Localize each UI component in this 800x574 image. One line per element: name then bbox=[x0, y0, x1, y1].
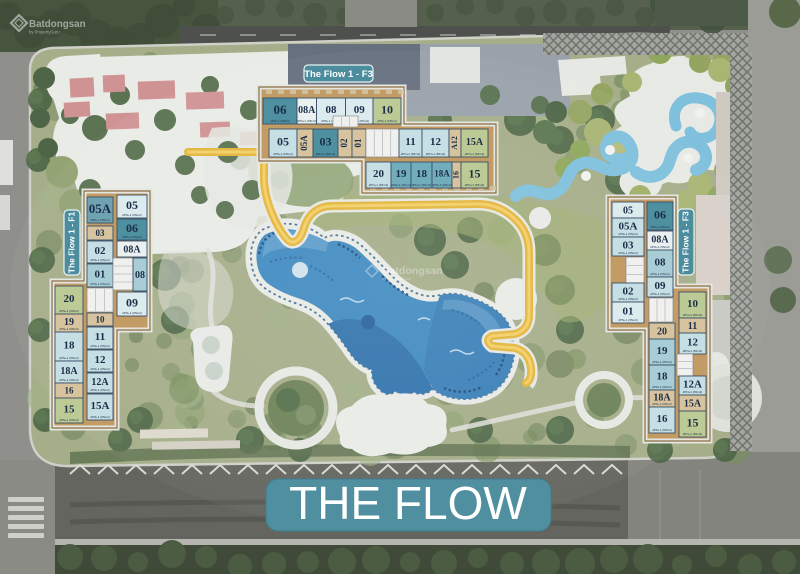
svg-text:2PN+1 (65m2): 2PN+1 (65m2) bbox=[652, 385, 672, 389]
svg-text:10: 10 bbox=[687, 298, 699, 310]
svg-text:2PN+1 (65m2): 2PN+1 (65m2) bbox=[122, 311, 142, 315]
svg-text:15A: 15A bbox=[466, 137, 484, 148]
svg-text:2PN+1 (65m2): 2PN+1 (65m2) bbox=[401, 152, 421, 156]
svg-text:16: 16 bbox=[657, 413, 669, 425]
svg-text:2PN+1 (65m2): 2PN+1 (65m2) bbox=[618, 232, 638, 236]
svg-text:12A: 12A bbox=[91, 377, 109, 388]
svg-text:2PN+1 (65m2): 2PN+1 (65m2) bbox=[90, 218, 110, 222]
svg-text:09: 09 bbox=[655, 280, 667, 292]
svg-text:2PN+1 (65m2): 2PN+1 (65m2) bbox=[122, 213, 142, 217]
svg-text:2PN+1 (65m2): 2PN+1 (65m2) bbox=[650, 245, 670, 249]
svg-text:12: 12 bbox=[430, 136, 442, 148]
svg-text:2PN+1 (65m2): 2PN+1 (65m2) bbox=[90, 258, 110, 262]
svg-text:01: 01 bbox=[95, 269, 106, 281]
svg-text:2PN+1 (65m2): 2PN+1 (65m2) bbox=[683, 349, 703, 353]
svg-text:2PN+1 (65m2): 2PN+1 (65m2) bbox=[465, 183, 485, 187]
svg-text:19: 19 bbox=[396, 168, 408, 180]
svg-text:12: 12 bbox=[687, 337, 699, 349]
svg-text:10: 10 bbox=[96, 315, 106, 325]
svg-text:18: 18 bbox=[657, 371, 669, 383]
svg-text:20: 20 bbox=[657, 326, 667, 337]
svg-text:A12: A12 bbox=[450, 136, 459, 150]
svg-text:2PN+1 (65m2): 2PN+1 (65m2) bbox=[90, 344, 110, 348]
svg-text:2PN+1 (65m2): 2PN+1 (65m2) bbox=[683, 432, 703, 436]
svg-text:by PropertyGuru: by PropertyGuru bbox=[29, 30, 60, 35]
svg-text:15: 15 bbox=[469, 167, 481, 181]
svg-text:2PN+1 (65m2): 2PN+1 (65m2) bbox=[59, 356, 79, 360]
svg-text:2PN+1 (65m2): 2PN+1 (65m2) bbox=[432, 183, 452, 187]
svg-text:16: 16 bbox=[451, 171, 460, 179]
svg-text:2PN+1 (65m2): 2PN+1 (65m2) bbox=[369, 183, 389, 187]
svg-text:2PN+1 (65m2): 2PN+1 (65m2) bbox=[90, 367, 110, 371]
svg-text:06: 06 bbox=[126, 221, 138, 235]
svg-text:2PN+1 (65m2): 2PN+1 (65m2) bbox=[59, 309, 79, 313]
svg-text:11: 11 bbox=[95, 331, 105, 343]
svg-text:08: 08 bbox=[135, 270, 145, 281]
svg-text:06: 06 bbox=[274, 102, 288, 117]
svg-text:01: 01 bbox=[623, 306, 634, 318]
svg-text:20: 20 bbox=[64, 293, 76, 305]
svg-text:2PN+1 (65m2): 2PN+1 (65m2) bbox=[652, 428, 672, 432]
svg-text:Batdongsan: Batdongsan bbox=[29, 19, 86, 30]
svg-text:The Flow 1 - F3: The Flow 1 - F3 bbox=[680, 211, 690, 273]
svg-text:08A: 08A bbox=[298, 105, 316, 116]
svg-text:11: 11 bbox=[405, 136, 415, 148]
svg-text:08A: 08A bbox=[651, 234, 669, 245]
svg-text:01: 01 bbox=[353, 138, 363, 148]
svg-text:03: 03 bbox=[96, 228, 106, 238]
svg-text:15: 15 bbox=[64, 404, 76, 416]
svg-text:2PN+1 (65m2): 2PN+1 (65m2) bbox=[297, 119, 317, 123]
svg-text:15A: 15A bbox=[684, 398, 702, 409]
svg-text:THE FLOW: THE FLOW bbox=[289, 477, 527, 529]
svg-text:2PN+1 (65m2): 2PN+1 (65m2) bbox=[377, 119, 397, 123]
svg-text:2PN+1 (65m2): 2PN+1 (65m2) bbox=[59, 327, 79, 331]
svg-text:08: 08 bbox=[326, 104, 338, 116]
svg-text:18A: 18A bbox=[434, 169, 450, 179]
svg-text:2PN+1 (65m2): 2PN+1 (65m2) bbox=[618, 318, 638, 322]
svg-text:16: 16 bbox=[65, 386, 75, 396]
svg-text:2PN+1 (65m2): 2PN+1 (65m2) bbox=[270, 119, 290, 123]
svg-text:2PN+1 (65m2): 2PN+1 (65m2) bbox=[650, 272, 670, 276]
svg-text:2PN+1 (65m2): 2PN+1 (65m2) bbox=[122, 235, 142, 239]
svg-text:05: 05 bbox=[277, 135, 289, 149]
svg-text:by PropertyGuru: by PropertyGuru bbox=[382, 276, 411, 281]
svg-text:05: 05 bbox=[126, 198, 138, 212]
svg-text:2PN+1 (65m2): 2PN+1 (65m2) bbox=[316, 152, 336, 156]
svg-text:20: 20 bbox=[373, 168, 385, 180]
svg-text:06: 06 bbox=[654, 208, 666, 222]
svg-text:08A: 08A bbox=[123, 244, 141, 255]
svg-text:The Flow 1 - F1: The Flow 1 - F1 bbox=[66, 212, 76, 274]
svg-text:15A: 15A bbox=[91, 400, 110, 412]
svg-text:18: 18 bbox=[64, 340, 76, 352]
svg-text:2PN+1 (65m2): 2PN+1 (65m2) bbox=[650, 225, 670, 229]
svg-text:05A: 05A bbox=[89, 201, 112, 216]
svg-text:2PN+1 (65m2): 2PN+1 (65m2) bbox=[90, 415, 110, 419]
svg-text:The Flow 1 - F3: The Flow 1 - F3 bbox=[304, 69, 373, 80]
svg-text:18: 18 bbox=[416, 168, 428, 180]
svg-text:2PN+1 (65m2): 2PN+1 (65m2) bbox=[683, 390, 703, 394]
svg-text:2PN+1 (65m2): 2PN+1 (65m2) bbox=[683, 313, 703, 317]
svg-text:2PN+1 (65m2): 2PN+1 (65m2) bbox=[618, 251, 638, 255]
svg-text:03: 03 bbox=[320, 135, 332, 149]
svg-text:2PN+1 (65m2): 2PN+1 (65m2) bbox=[90, 282, 110, 286]
svg-text:02: 02 bbox=[95, 245, 107, 257]
svg-text:02: 02 bbox=[339, 138, 349, 148]
svg-text:15: 15 bbox=[687, 416, 699, 430]
svg-text:18A: 18A bbox=[60, 366, 78, 377]
svg-text:05A: 05A bbox=[299, 135, 309, 151]
svg-text:08: 08 bbox=[655, 257, 667, 269]
svg-text:2PN+1 (65m2): 2PN+1 (65m2) bbox=[618, 297, 638, 301]
svg-text:10: 10 bbox=[381, 103, 393, 117]
svg-text:2PN+1 (65m2): 2PN+1 (65m2) bbox=[273, 152, 293, 156]
svg-text:19: 19 bbox=[657, 345, 669, 357]
svg-text:2PN+1 (65m2): 2PN+1 (65m2) bbox=[650, 292, 670, 296]
svg-text:2PN+1 (65m2): 2PN+1 (65m2) bbox=[59, 378, 79, 382]
svg-text:09: 09 bbox=[126, 296, 138, 310]
svg-text:2PN+1 (65m2): 2PN+1 (65m2) bbox=[426, 152, 446, 156]
svg-text:05: 05 bbox=[623, 205, 633, 216]
svg-text:2PN+1 (65m2): 2PN+1 (65m2) bbox=[59, 418, 79, 422]
svg-text:12: 12 bbox=[95, 354, 107, 366]
svg-text:2PN+1 (65m2): 2PN+1 (65m2) bbox=[412, 183, 432, 187]
svg-text:2PN+1 (65m2): 2PN+1 (65m2) bbox=[652, 360, 672, 364]
svg-text:2PN+1 (65m2): 2PN+1 (65m2) bbox=[90, 388, 110, 392]
svg-text:09: 09 bbox=[354, 104, 366, 116]
svg-text:2PN+1 (65m2): 2PN+1 (65m2) bbox=[465, 152, 485, 156]
svg-text:2PN+1 (65m2): 2PN+1 (65m2) bbox=[391, 183, 411, 187]
svg-text:11: 11 bbox=[688, 321, 697, 332]
svg-text:2PN+1 (65m2): 2PN+1 (65m2) bbox=[652, 402, 672, 406]
